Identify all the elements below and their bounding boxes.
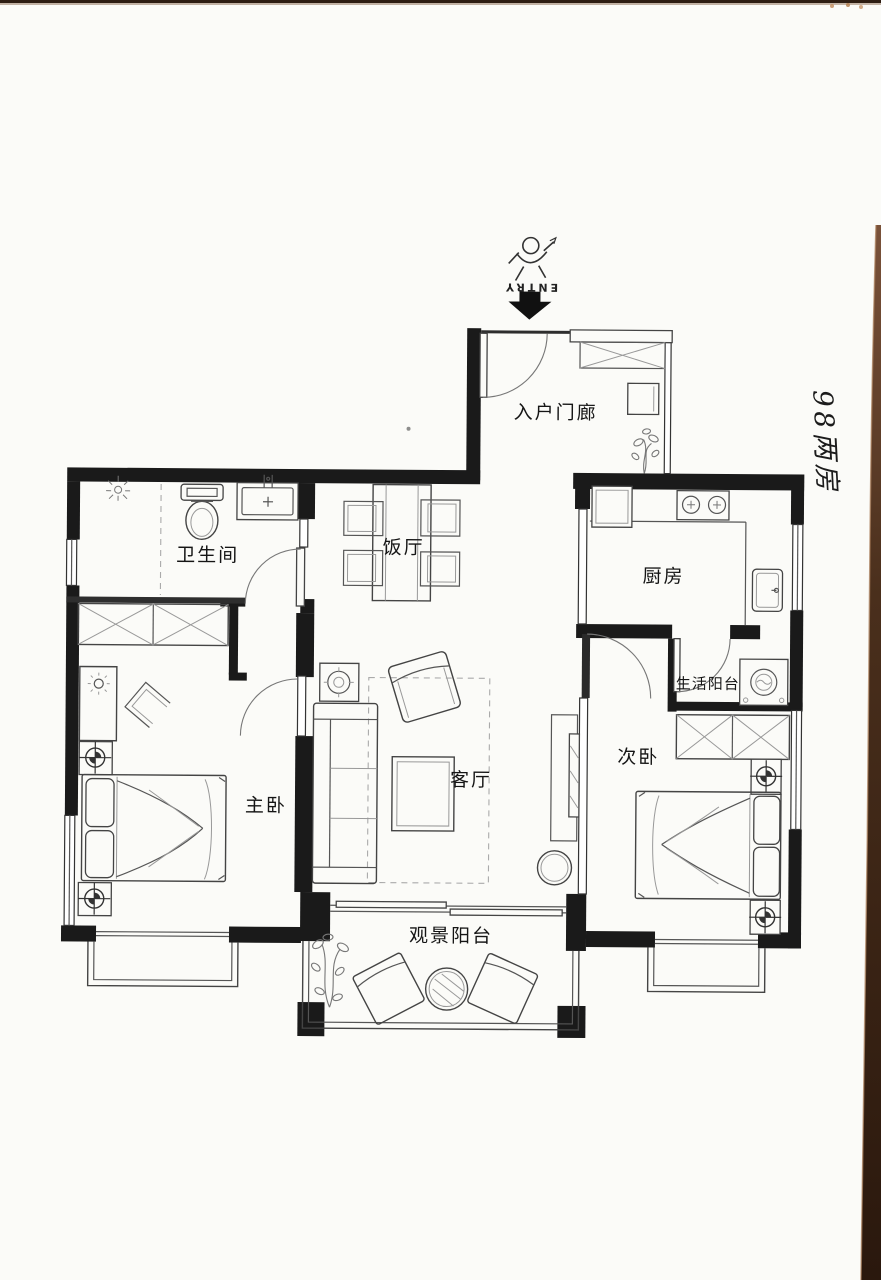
label-entry-porch: 入户门廊 [514,402,598,425]
tv-feature-partition [578,698,587,894]
handwritten-note: 98两房 [806,389,842,495]
speaker-unit [320,663,359,701]
paper-background [0,0,881,1280]
master-window [64,815,75,925]
label-dining-room: 饭厅 [383,537,425,559]
scan-smudge [407,427,411,431]
label-view-balcony: 观景阳台 [409,925,493,948]
label-bathroom: 卫生间 [176,544,239,566]
fridge [592,486,632,527]
second-bedroom-window [791,710,802,829]
label-living-room: 客厅 [450,769,492,791]
washing-machine [740,659,788,705]
kitchen-window [792,524,803,610]
master-door-jamb [297,676,305,736]
stove [677,491,729,520]
label-master-bedroom: 主卧 [245,795,287,817]
bathroom-window [66,539,76,585]
entry-stool [628,383,659,414]
service-balcony-area [740,659,788,705]
kitchen-partition [578,509,587,624]
second-nightstand-top [750,759,782,794]
wall-jamb [300,519,308,547]
master-nightstand-top [79,741,112,774]
second-nightstand-bottom [749,900,781,934]
master-nightstand-bottom [78,882,111,915]
kitchen-sink [752,569,782,611]
label-kitchen: 厨房 [642,565,684,587]
label-second-bedroom: 次卧 [617,746,659,768]
scanned-floor-plan: 98两房 [0,0,881,1280]
floor-plan-svg: 98两房 [0,0,881,1280]
label-service-balcony: 生活阳台 [676,676,740,693]
